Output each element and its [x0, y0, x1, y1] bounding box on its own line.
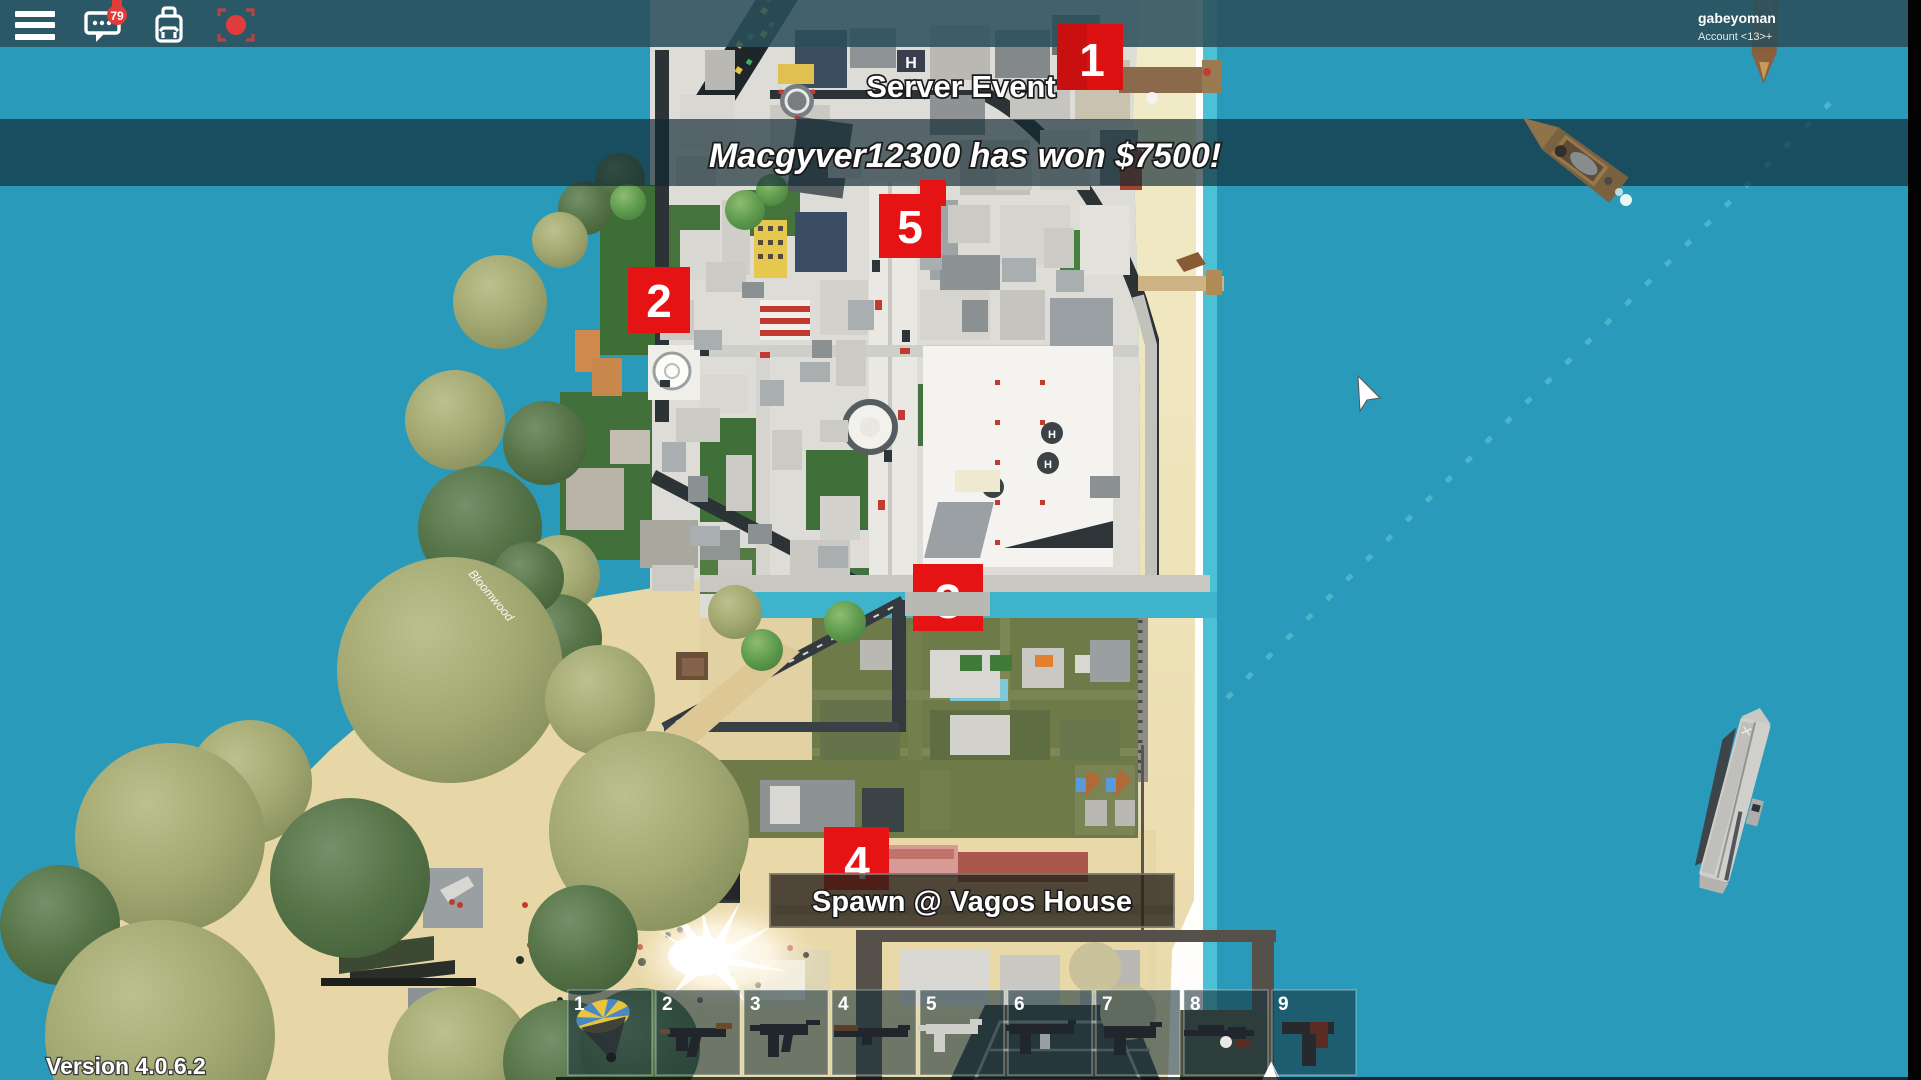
- svg-text:4: 4: [838, 994, 849, 1015]
- svg-text:6: 6: [1014, 994, 1025, 1015]
- svg-text:2: 2: [662, 994, 673, 1015]
- svg-text:3: 3: [750, 994, 761, 1015]
- svg-text:Version 4.0.6.2: Version 4.0.6.2: [46, 1053, 206, 1079]
- svg-text:5: 5: [926, 994, 937, 1015]
- svg-text:Account <13>+: Account <13>+: [1698, 31, 1772, 43]
- svg-text:79: 79: [110, 9, 124, 23]
- svg-text:Macgyver12300 has won $7500!: Macgyver12300 has won $7500!: [709, 137, 1221, 175]
- svg-text:5: 5: [897, 201, 923, 253]
- svg-text:8: 8: [1190, 994, 1201, 1015]
- svg-text:Server Event: Server Event: [866, 69, 1056, 104]
- svg-text:Spawn @ Vagos House: Spawn @ Vagos House: [812, 886, 1132, 918]
- svg-text:7: 7: [1102, 994, 1113, 1015]
- svg-text:1: 1: [574, 994, 585, 1015]
- svg-text:gabeyoman: gabeyoman: [1698, 10, 1776, 26]
- svg-text:9: 9: [1278, 994, 1289, 1015]
- svg-text:1: 1: [1079, 34, 1105, 86]
- svg-text:2: 2: [646, 275, 672, 327]
- svg-text:H: H: [1048, 429, 1056, 441]
- svg-text:H: H: [1044, 459, 1052, 471]
